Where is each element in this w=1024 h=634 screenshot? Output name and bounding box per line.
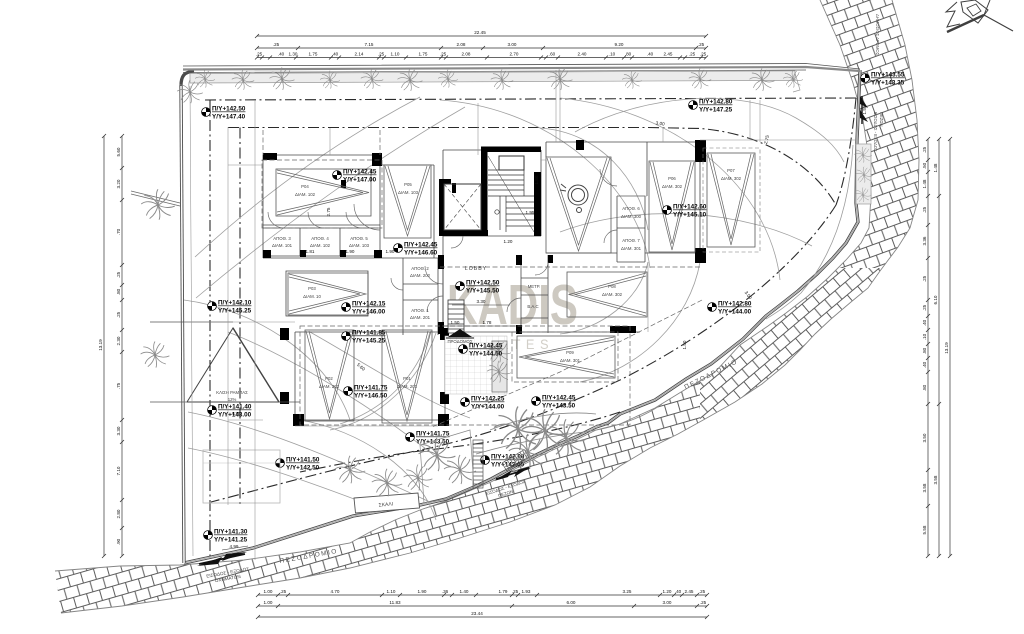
svg-text:.80: .80 xyxy=(116,288,121,295)
svg-text:Υ/Υ+147.00: Υ/Υ+147.00 xyxy=(343,177,377,184)
svg-text:.40: .40 xyxy=(922,319,927,326)
svg-text:ΔIAM. 201: ΔIAM. 201 xyxy=(397,384,418,389)
svg-text:Π/Υ+142.60: Π/Υ+142.60 xyxy=(673,204,707,211)
svg-text:Π/Υ+142.80: Π/Υ+142.80 xyxy=(718,301,752,308)
svg-text:Π/Υ+142.15: Π/Υ+142.15 xyxy=(352,301,386,308)
svg-text:ΔIAM. 302: ΔIAM. 302 xyxy=(602,292,623,297)
svg-text:KΛIΣH PAMΠAΣ: KΛIΣH PAMΠAΣ xyxy=(216,390,248,395)
svg-text:1.78: 1.78 xyxy=(483,320,492,325)
svg-text:ΠEΖΩN: ΠEΖΩN xyxy=(879,112,884,127)
svg-text:4.70: 4.70 xyxy=(331,589,340,594)
svg-text:Π/Υ+142.10: Π/Υ+142.10 xyxy=(218,300,252,307)
svg-text:.25: .25 xyxy=(698,42,705,47)
svg-text:.40: .40 xyxy=(922,361,927,368)
svg-text:3.00: 3.00 xyxy=(663,600,672,605)
svg-text:1.00: 1.00 xyxy=(264,589,273,594)
svg-text:Υ/Υ+144.00: Υ/Υ+144.00 xyxy=(471,404,505,411)
svg-text:1.80: 1.80 xyxy=(534,175,539,184)
svg-text:AΠOΘ. 1: AΠOΘ. 1 xyxy=(411,308,429,313)
svg-text:13.19: 13.19 xyxy=(944,342,949,354)
svg-text:Π/Υ+142.45: Π/Υ+142.45 xyxy=(404,242,438,249)
svg-text:1.93: 1.93 xyxy=(522,589,531,594)
svg-text:3.50: 3.50 xyxy=(922,433,927,442)
svg-text:.25: .25 xyxy=(280,589,287,594)
svg-text:.40: .40 xyxy=(332,52,339,57)
svg-text:ΔHMOΣIOΣ ΔPOMOΣ: ΔHMOΣIOΣ ΔPOMOΣ xyxy=(875,14,880,56)
svg-text:12%: 12% xyxy=(228,397,237,402)
svg-text:Π/Υ+142.25: Π/Υ+142.25 xyxy=(471,396,505,403)
svg-text:2.75: 2.75 xyxy=(326,207,331,216)
svg-text:.25: .25 xyxy=(922,275,927,282)
svg-text:AΠOΘ. 6: AΠOΘ. 6 xyxy=(622,206,640,211)
svg-text:1.10: 1.10 xyxy=(387,589,396,594)
svg-text:22.45: 22.45 xyxy=(474,30,486,35)
svg-text:P05: P05 xyxy=(404,182,412,187)
svg-text:5.58: 5.58 xyxy=(922,525,927,534)
svg-text:AΠOΘ. 2: AΠOΘ. 2 xyxy=(411,266,429,271)
svg-text:2.08: 2.08 xyxy=(457,42,466,47)
svg-text:6.10: 6.10 xyxy=(933,295,938,304)
svg-text:Υ/Υ+143.35: Υ/Υ+143.35 xyxy=(871,80,905,87)
svg-text:Π/Υ+141.75: Π/Υ+141.75 xyxy=(354,385,388,392)
svg-text:.25: .25 xyxy=(256,52,263,57)
svg-text:.80: .80 xyxy=(625,52,632,57)
svg-text:P04: P04 xyxy=(301,184,309,189)
svg-text:Π/Υ+142.45: Π/Υ+142.45 xyxy=(469,343,503,350)
svg-text:.25: .25 xyxy=(512,589,519,594)
svg-text:6.00: 6.00 xyxy=(567,600,576,605)
svg-text:1.90: 1.90 xyxy=(418,589,427,594)
svg-text:.10: .10 xyxy=(922,333,927,340)
svg-text:1.81: 1.81 xyxy=(306,249,315,254)
svg-text:3.58: 3.58 xyxy=(933,475,938,484)
svg-text:7.10: 7.10 xyxy=(116,466,121,475)
svg-text:.80: .80 xyxy=(922,384,927,391)
svg-text:ΔIAM. 300: ΔIAM. 300 xyxy=(621,214,642,219)
svg-text:P03: P03 xyxy=(308,286,316,291)
svg-text:3.30: 3.30 xyxy=(116,426,121,435)
svg-text:3.25: 3.25 xyxy=(623,589,632,594)
svg-text:2.45: 2.45 xyxy=(685,589,694,594)
svg-text:.25: .25 xyxy=(922,146,927,153)
svg-text:Υ/Υ+145.25: Υ/Υ+145.25 xyxy=(352,338,386,345)
svg-text:Π/Υ+142.80: Π/Υ+142.80 xyxy=(699,99,733,106)
svg-text:.25: .25 xyxy=(116,311,121,318)
svg-text:ΔIAM. 101: ΔIAM. 101 xyxy=(272,243,293,248)
svg-text:23.44: 23.44 xyxy=(471,611,483,616)
svg-text:Υ/Υ+146.60: Υ/Υ+146.60 xyxy=(404,250,438,257)
svg-text:1.50: 1.50 xyxy=(682,340,687,349)
svg-text:2.40: 2.40 xyxy=(578,52,587,57)
svg-text:P09: P09 xyxy=(566,350,574,355)
svg-text:.25: .25 xyxy=(273,42,280,47)
svg-text:.80: .80 xyxy=(922,347,927,354)
svg-text:Υ/Υ+143.50: Υ/Υ+143.50 xyxy=(542,403,576,410)
svg-text:Π/Υ+142.50: Π/Υ+142.50 xyxy=(212,106,246,113)
svg-text:5.60: 5.60 xyxy=(116,147,121,156)
svg-text:P01: P01 xyxy=(403,376,411,381)
svg-text:AΠOΘ. 3: AΠOΘ. 3 xyxy=(273,236,291,241)
svg-text:ΔIAM. 102: ΔIAM. 102 xyxy=(310,243,331,248)
svg-text:AΠOΘ. 7: AΠOΘ. 7 xyxy=(622,238,640,243)
svg-text:2.14: 2.14 xyxy=(355,52,364,57)
svg-text:ΔIAM. 102: ΔIAM. 102 xyxy=(295,192,316,197)
svg-text:P07: P07 xyxy=(727,168,735,173)
svg-text:.36: .36 xyxy=(442,589,449,594)
svg-text:.40: .40 xyxy=(647,52,654,57)
svg-text:.70: .70 xyxy=(116,228,121,235)
svg-text:Π/Υ+142.50: Π/Υ+142.50 xyxy=(466,280,500,287)
svg-text:ΔIAM. 201: ΔIAM. 201 xyxy=(410,315,431,320)
svg-text:.25: .25 xyxy=(700,52,707,57)
svg-text:11.83: 11.83 xyxy=(389,600,401,605)
svg-text:.10: .10 xyxy=(609,52,616,57)
svg-text:Υ/Υ+146.50: Υ/Υ+146.50 xyxy=(354,393,388,400)
svg-text:Υ/Υ+145.10: Υ/Υ+145.10 xyxy=(673,212,707,219)
svg-text:P06: P06 xyxy=(668,176,676,181)
svg-text:METP.: METP. xyxy=(528,284,541,289)
svg-text:1.40: 1.40 xyxy=(460,589,469,594)
svg-text:3.36: 3.36 xyxy=(922,236,927,245)
svg-text:EIΣOΔOΣ - EΞOΔOΣ: EIΣOΔOΣ - EΞOΔOΣ xyxy=(873,112,878,152)
svg-text:Υ/Υ+144.50: Υ/Υ+144.50 xyxy=(469,351,503,358)
svg-text:P08: P08 xyxy=(608,284,616,289)
svg-text:.25: .25 xyxy=(922,304,927,311)
svg-text:2.30: 2.30 xyxy=(116,336,121,345)
svg-text:1.90: 1.90 xyxy=(386,249,395,254)
svg-text:1.75: 1.75 xyxy=(309,52,318,57)
svg-text:Π/Υ+141.40: Π/Υ+141.40 xyxy=(218,404,252,411)
svg-text:Υ/Υ+142.50: Υ/Υ+142.50 xyxy=(286,465,320,472)
svg-text:.60: .60 xyxy=(549,52,556,57)
svg-text:ΔIAM. 301: ΔIAM. 301 xyxy=(560,358,581,363)
svg-text:LOBBY: LOBBY xyxy=(465,266,487,272)
svg-text:Π/Υ+143.55: Π/Υ+143.55 xyxy=(871,72,905,79)
svg-text:1.48: 1.48 xyxy=(933,163,938,172)
svg-text:2.45: 2.45 xyxy=(664,52,673,57)
svg-text:Π/Υ+141.50: Π/Υ+141.50 xyxy=(286,457,320,464)
svg-text:.25: .25 xyxy=(922,206,927,213)
svg-text:Υ/Υ+146.00: Υ/Υ+146.00 xyxy=(352,309,386,316)
svg-text:Υ/Υ+147.40: Υ/Υ+147.40 xyxy=(212,114,246,121)
svg-text:.25: .25 xyxy=(699,589,706,594)
svg-text:1.10: 1.10 xyxy=(391,52,400,57)
svg-text:13.19: 13.19 xyxy=(98,339,103,351)
svg-text:ΔIAM. 301: ΔIAM. 301 xyxy=(621,246,642,251)
svg-text:ΔIAM. 202: ΔIAM. 202 xyxy=(319,384,340,389)
svg-text:3.00: 3.00 xyxy=(508,42,517,47)
svg-text:1.75: 1.75 xyxy=(419,52,428,57)
svg-text:3.30: 3.30 xyxy=(477,299,486,304)
svg-text:1.00: 1.00 xyxy=(264,600,273,605)
svg-text:AΠOΘ. 4: AΠOΘ. 4 xyxy=(311,236,329,241)
svg-text:3.58: 3.58 xyxy=(922,483,927,492)
svg-text:ΔIAM. 302: ΔIAM. 302 xyxy=(721,176,742,181)
svg-text:1.79: 1.79 xyxy=(499,589,508,594)
svg-text:Π/Υ+142.45: Π/Υ+142.45 xyxy=(343,169,377,176)
svg-text:Π/Υ+141.75: Π/Υ+141.75 xyxy=(416,431,450,438)
svg-text:Υ/Υ+143.00: Υ/Υ+143.00 xyxy=(218,412,252,419)
svg-text:1.20: 1.20 xyxy=(504,239,513,244)
svg-text:Υ/Υ+145.50: Υ/Υ+145.50 xyxy=(466,288,500,295)
svg-text:7.15: 7.15 xyxy=(365,42,374,47)
svg-text:ΔIAM. 103: ΔIAM. 103 xyxy=(398,190,419,195)
svg-text:1.90: 1.90 xyxy=(346,249,355,254)
svg-text:B.A.C: B.A.C xyxy=(527,304,538,309)
svg-text:ΔIAM. 10: ΔIAM. 10 xyxy=(303,294,321,299)
svg-text:ΔIAM. 302: ΔIAM. 302 xyxy=(662,184,683,189)
svg-text:.25: .25 xyxy=(378,52,385,57)
svg-text:ΔIAM. 103: ΔIAM. 103 xyxy=(349,243,370,248)
svg-text:Υ/Υ+141.25: Υ/Υ+141.25 xyxy=(214,537,248,544)
svg-text:1.95: 1.95 xyxy=(526,210,535,215)
svg-text:3.20: 3.20 xyxy=(116,179,121,188)
svg-text:P02: P02 xyxy=(325,376,333,381)
svg-text:.25: .25 xyxy=(700,600,707,605)
svg-text:Π/Υ+141.85: Π/Υ+141.85 xyxy=(352,330,386,337)
svg-text:1.30: 1.30 xyxy=(289,52,298,57)
svg-text:2.08: 2.08 xyxy=(462,52,471,57)
svg-text:.40: .40 xyxy=(278,52,285,57)
svg-text:.25: .25 xyxy=(689,52,696,57)
svg-text:.75: .75 xyxy=(116,382,121,389)
svg-text:Π/Υ+142.45: Π/Υ+142.45 xyxy=(542,395,576,402)
svg-text:1.50: 1.50 xyxy=(451,320,460,325)
svg-text:1.48: 1.48 xyxy=(922,179,927,188)
svg-text:2.80: 2.80 xyxy=(116,509,121,518)
svg-text:1.20: 1.20 xyxy=(663,589,672,594)
svg-text:9.20: 9.20 xyxy=(615,42,624,47)
svg-text:.25: .25 xyxy=(116,271,121,278)
svg-text:AΠOΘ. 5: AΠOΘ. 5 xyxy=(350,236,368,241)
svg-text:.25: .25 xyxy=(440,52,447,57)
svg-text:ΣKAΛI: ΣKAΛI xyxy=(378,501,393,508)
svg-text:Υ/Υ+144.00: Υ/Υ+144.00 xyxy=(718,309,752,316)
svg-text:.50: .50 xyxy=(922,162,927,169)
svg-text:Υ/Υ+147.25: Υ/Υ+147.25 xyxy=(699,107,733,114)
svg-text:2.70: 2.70 xyxy=(510,52,519,57)
svg-text:Υ/Υ+145.25: Υ/Υ+145.25 xyxy=(218,308,252,315)
svg-text:.90: .90 xyxy=(116,538,121,545)
svg-text:Π/Υ+141.30: Π/Υ+141.30 xyxy=(214,529,248,536)
svg-text:.40: .40 xyxy=(675,589,682,594)
